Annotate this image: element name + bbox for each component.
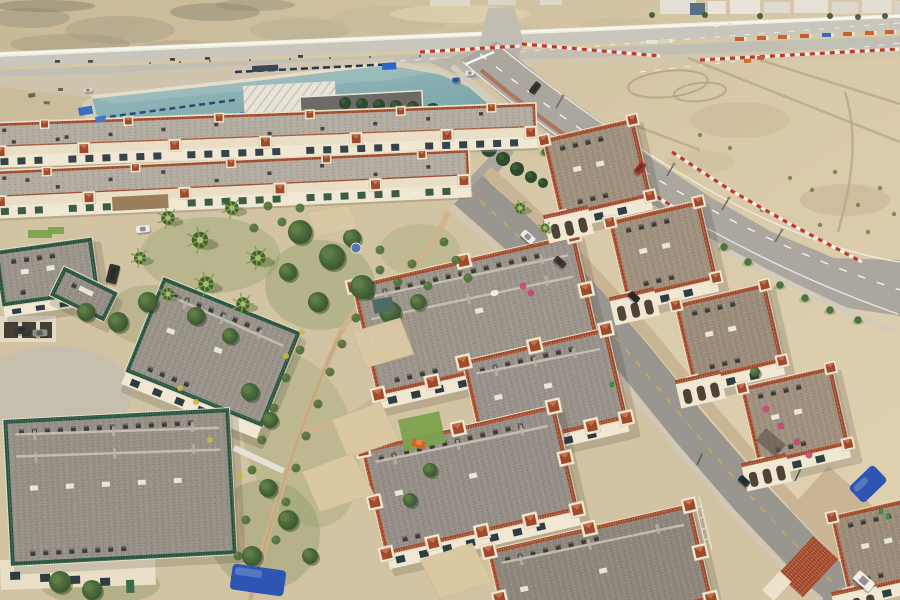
building-left-3 [2, 407, 246, 575]
car [14, 326, 32, 337]
aerial-photo-canvas [0, 0, 900, 600]
car [32, 329, 48, 339]
car [465, 70, 475, 78]
car [136, 225, 152, 236]
aerial-photo [0, 0, 900, 600]
